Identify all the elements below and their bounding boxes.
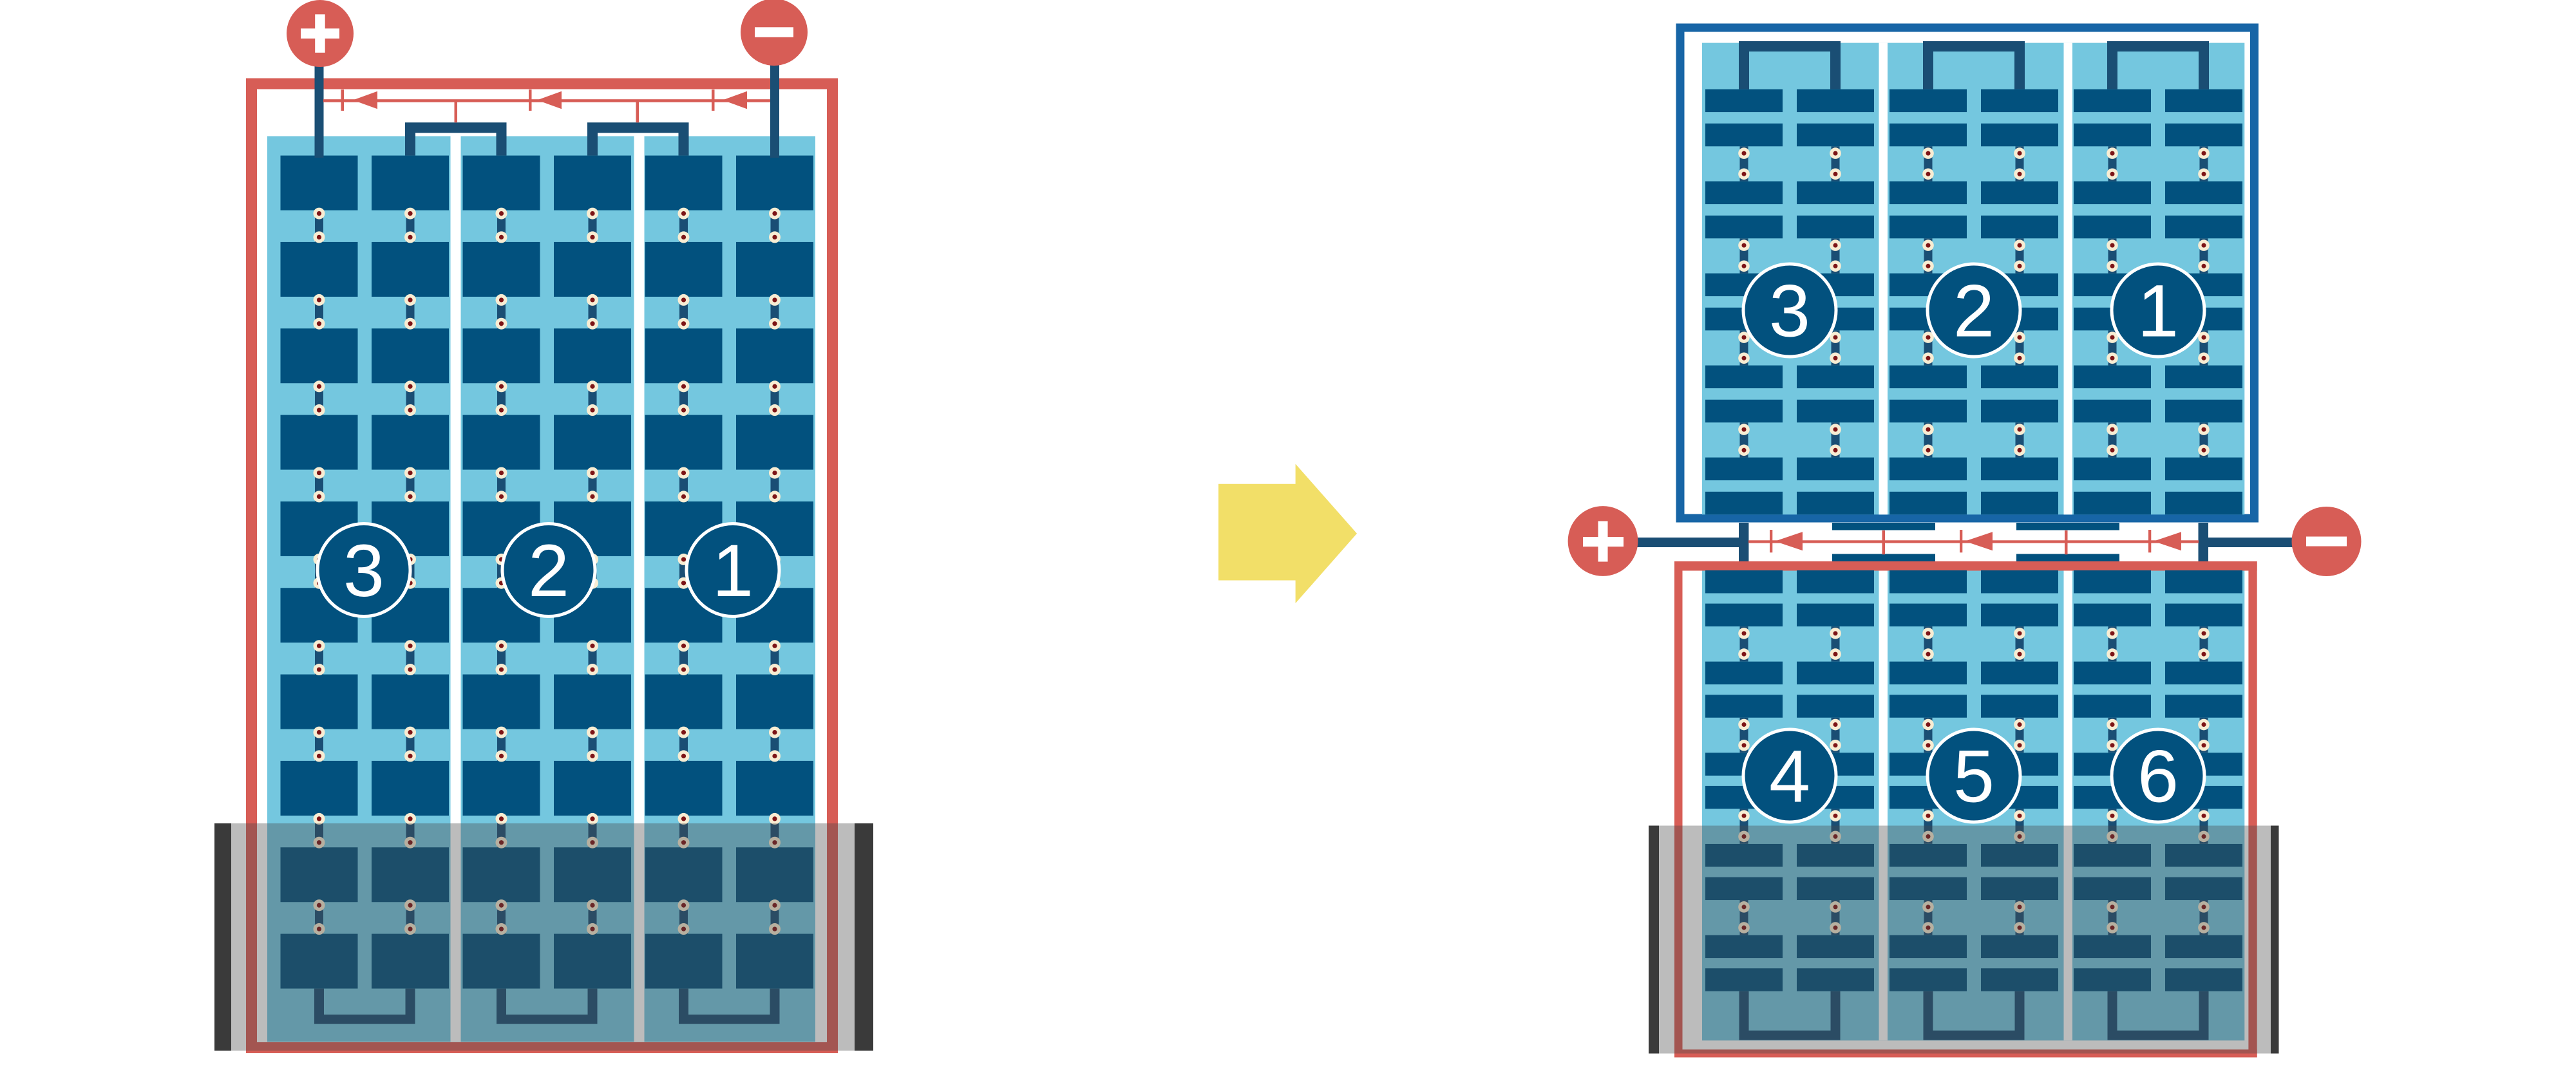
svg-text:1: 1 <box>2137 270 2179 353</box>
svg-text:6: 6 <box>2137 736 2179 818</box>
svg-text:1: 1 <box>712 530 753 612</box>
svg-text:2: 2 <box>1953 270 1994 353</box>
svg-text:4: 4 <box>1769 736 1810 818</box>
svg-text:5: 5 <box>1953 736 1994 818</box>
svg-text:2: 2 <box>528 530 569 612</box>
svg-text:3: 3 <box>1769 270 1810 353</box>
svg-text:3: 3 <box>343 530 384 612</box>
